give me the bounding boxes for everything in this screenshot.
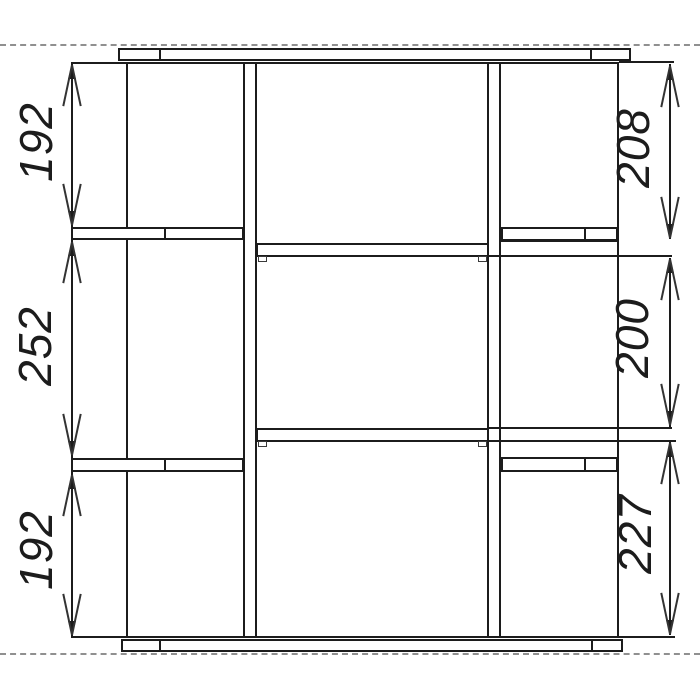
bottom-rail-right-tab-divider xyxy=(591,640,593,651)
dim-label-left-top: 192 xyxy=(10,94,62,190)
partition-1-right-line xyxy=(255,62,257,638)
extension-line-top-right xyxy=(619,61,674,63)
right-dimension-line-200 xyxy=(669,258,671,427)
extension-line-shelf-lower-bottom xyxy=(489,440,676,442)
left-column-divider-upper xyxy=(71,227,244,240)
dim-label-right-bottom: 227 xyxy=(609,486,661,582)
left-divider-upper-tab xyxy=(164,228,166,239)
top-rail xyxy=(118,48,631,61)
dim-252-arrow-up xyxy=(68,241,76,256)
dim-208-arrow-up xyxy=(666,65,674,80)
top-rail-right-tab-divider xyxy=(590,49,592,60)
dim-192-bottom-arrow-down xyxy=(68,621,76,636)
partition-1-left-line xyxy=(243,62,245,638)
middle-shelf-upper xyxy=(256,243,489,257)
dim-227-arrow-up xyxy=(666,442,674,457)
middle-shelf-upper-right-clip xyxy=(478,256,487,262)
left-inner-vertical-panel xyxy=(126,62,128,638)
left-divider-lower-tab xyxy=(164,459,166,471)
extension-line-bottom-right xyxy=(619,636,675,638)
dim-208-arrow-down xyxy=(666,224,674,239)
dim-label-left-middle: 252 xyxy=(9,298,61,394)
dim-200-arrow-up xyxy=(666,258,674,273)
dim-label-right-top: 208 xyxy=(607,100,659,196)
right-divider-upper-tab xyxy=(584,228,586,240)
dim-192-bottom-arrow-up xyxy=(68,474,76,489)
dim-227-arrow-down xyxy=(666,620,674,635)
extension-line-shelf-lower-top xyxy=(489,427,672,429)
right-column-divider-lower xyxy=(501,457,618,472)
dim-200-arrow-down xyxy=(666,411,674,426)
dim-label-right-middle: 200 xyxy=(606,290,658,386)
furniture-elevation-drawing: 192 252 192 208 200 227 xyxy=(0,0,700,700)
middle-shelf-lower xyxy=(256,428,489,442)
extension-line-shelf-upper-bottom xyxy=(489,255,672,257)
carcass-outline xyxy=(71,62,619,638)
middle-shelf-lower-left-clip xyxy=(258,441,267,447)
partition-2-right-line xyxy=(499,62,501,638)
bottom-rail-left-tab-divider xyxy=(159,640,161,651)
dim-192-top-arrow-up xyxy=(68,64,76,79)
top-dashed-guide-line xyxy=(0,44,700,46)
middle-shelf-upper-left-clip xyxy=(258,256,267,262)
dim-label-left-bottom: 192 xyxy=(10,502,62,598)
dim-252-arrow-down xyxy=(68,441,76,456)
right-dimension-line-227 xyxy=(669,442,671,635)
right-divider-lower-tab xyxy=(584,458,586,471)
left-column-divider-lower xyxy=(71,458,244,472)
dim-192-top-arrow-down xyxy=(68,211,76,226)
right-dimension-line-208 xyxy=(669,64,671,239)
top-rail-left-tab-divider xyxy=(159,49,161,60)
middle-shelf-lower-right-clip xyxy=(478,441,487,447)
right-column-divider-upper xyxy=(501,227,618,242)
bottom-rail xyxy=(121,639,623,652)
partition-2-left-line xyxy=(487,62,489,638)
bottom-dashed-guide-line xyxy=(0,653,700,655)
